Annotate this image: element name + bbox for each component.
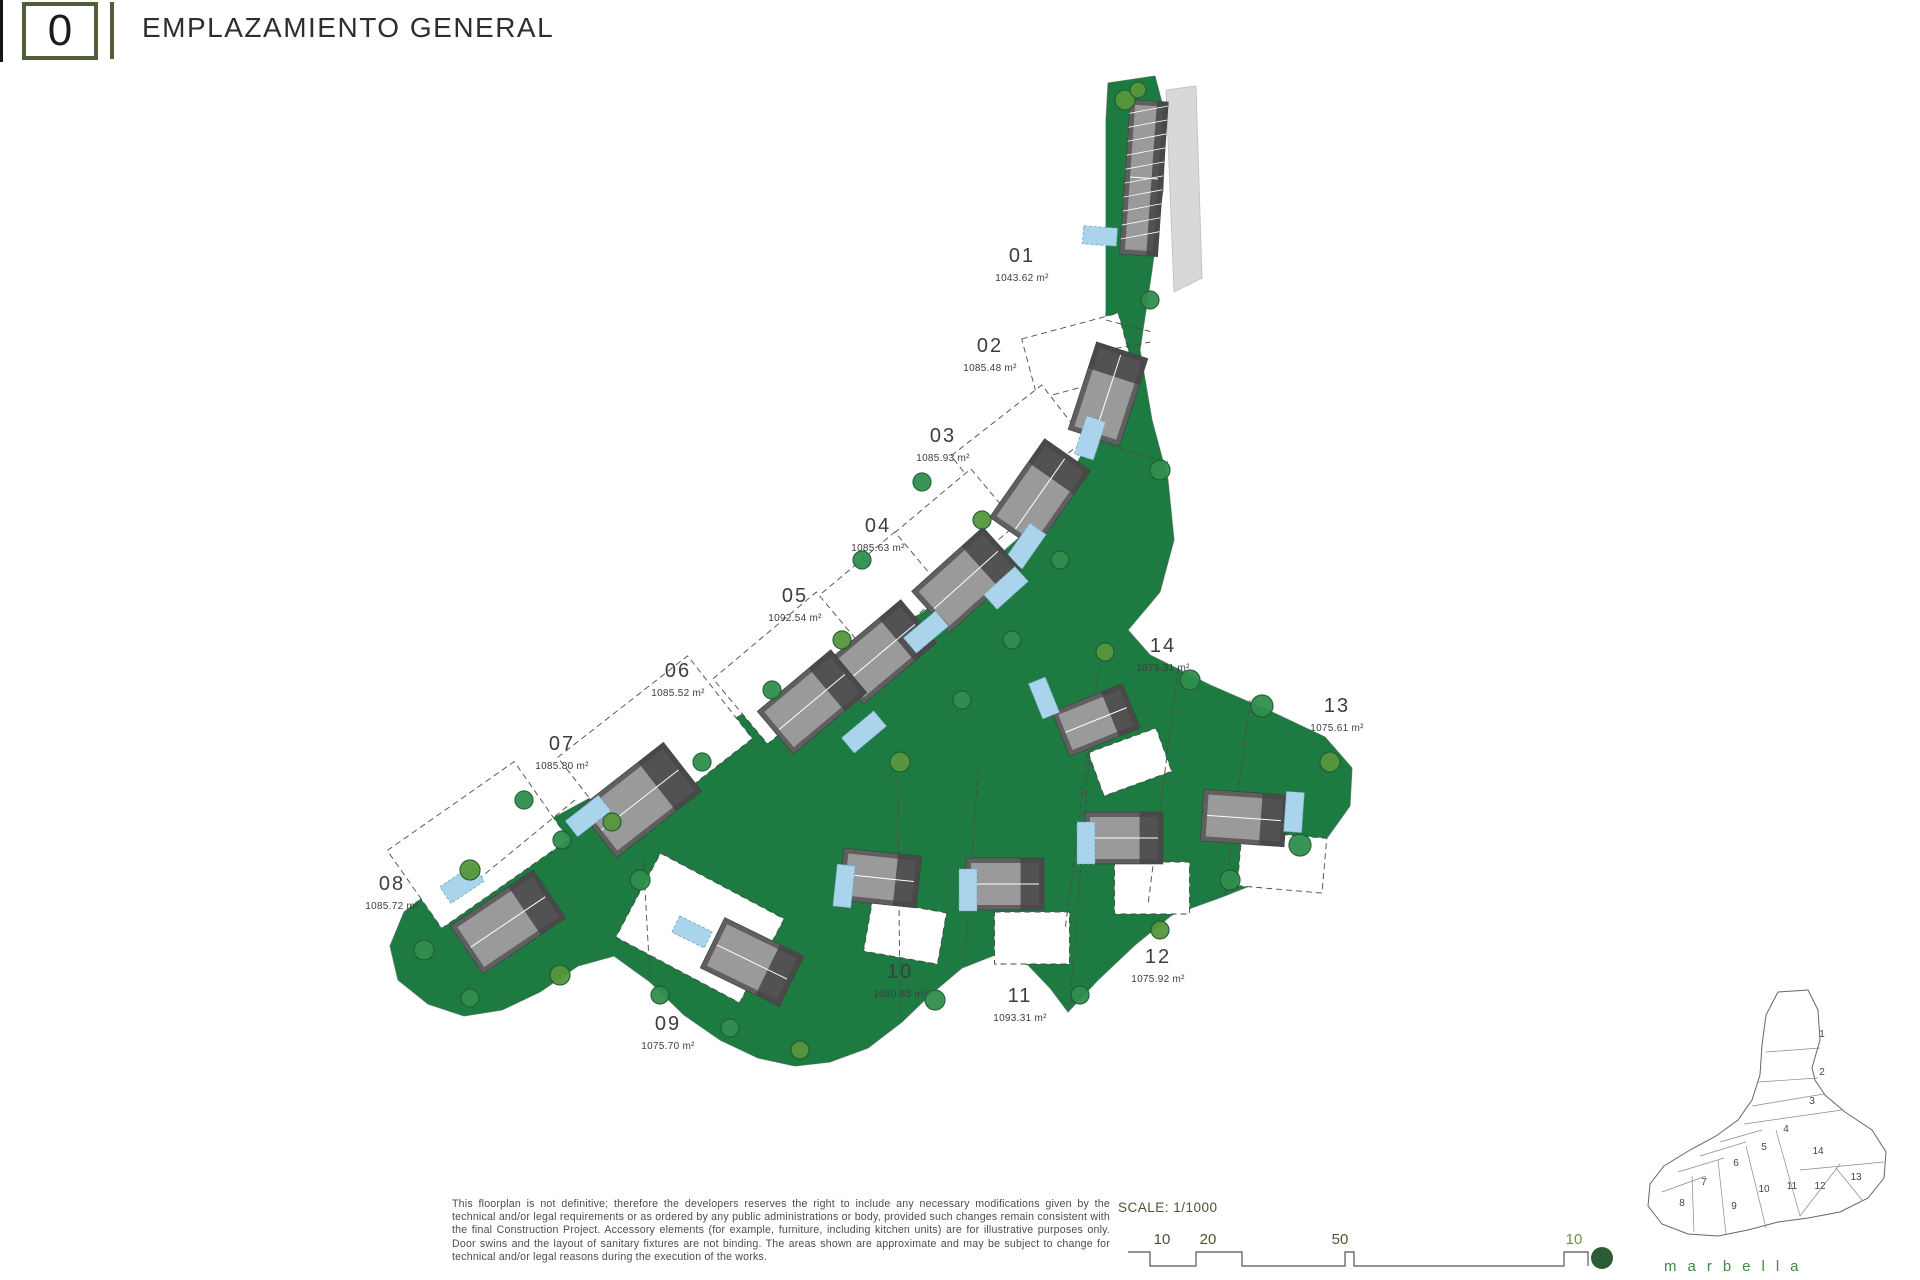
keyplan-plot-number: 2 bbox=[1819, 1067, 1825, 1078]
plot-area: 1079.31 m² bbox=[1136, 663, 1190, 674]
plot-area: 1092.54 m² bbox=[768, 613, 822, 624]
tree-icon bbox=[973, 511, 991, 529]
scale-bar-tick: 10 bbox=[1154, 1231, 1171, 1248]
plot-number: 05 bbox=[782, 585, 808, 607]
tree-icon bbox=[693, 753, 711, 771]
pool bbox=[1077, 822, 1095, 864]
plot-area: 1085.52 m² bbox=[651, 688, 705, 699]
keyplan-plot-number: 9 bbox=[1731, 1201, 1737, 1212]
tree-icon bbox=[1150, 460, 1170, 480]
plot-number: 13 bbox=[1324, 695, 1350, 717]
tree-icon bbox=[721, 1019, 739, 1037]
tree-icon bbox=[414, 940, 434, 960]
keyplan-plot-number: 3 bbox=[1809, 1096, 1815, 1107]
tree-icon bbox=[553, 831, 571, 849]
tree-icon bbox=[913, 473, 931, 491]
plot-number: 14 bbox=[1150, 635, 1176, 657]
villa bbox=[966, 858, 1044, 910]
brand-logotype: marbella bbox=[1664, 1258, 1810, 1275]
tree-icon bbox=[953, 691, 971, 709]
tree-icon bbox=[890, 752, 910, 772]
scale-bar bbox=[1128, 1252, 1588, 1266]
keyplan-plot-number: 7 bbox=[1701, 1177, 1707, 1188]
plot-area: 1075.70 m² bbox=[641, 1041, 695, 1052]
plot-number: 04 bbox=[865, 515, 891, 537]
tree-icon bbox=[1051, 551, 1069, 569]
tree-icon bbox=[1151, 921, 1169, 939]
tree-icon bbox=[763, 681, 781, 699]
keyplan-plot-number: 10 bbox=[1758, 1184, 1770, 1195]
tree-icon bbox=[603, 813, 621, 831]
plot-forecourt bbox=[1115, 862, 1190, 914]
keyplan-plot-number: 8 bbox=[1679, 1198, 1685, 1209]
tree-icon bbox=[791, 1041, 809, 1059]
pool bbox=[1082, 226, 1117, 246]
scale-bar-tick: 10 bbox=[1566, 1231, 1583, 1248]
tree-icon bbox=[1130, 82, 1146, 98]
keyplan-plot-number: 5 bbox=[1761, 1142, 1767, 1153]
tree-icon bbox=[1141, 291, 1159, 309]
scale-bar-tick: 50 bbox=[1332, 1231, 1349, 1248]
tree-icon bbox=[1320, 752, 1340, 772]
tree-icon bbox=[651, 986, 669, 1004]
scale-label: SCALE: 1/1000 bbox=[1118, 1200, 1218, 1215]
plot-number: 09 bbox=[655, 1013, 681, 1035]
plot-number: 08 bbox=[379, 873, 405, 895]
plot-number: 03 bbox=[930, 425, 956, 447]
tree-icon bbox=[460, 860, 480, 880]
plot-area: 1085.63 m² bbox=[851, 543, 905, 554]
tree-icon bbox=[1251, 695, 1273, 717]
keyplan-plot-number: 14 bbox=[1812, 1146, 1824, 1157]
access-road bbox=[1166, 86, 1202, 292]
scale-dot-icon bbox=[1591, 1247, 1613, 1269]
plot-area: 1043.62 m² bbox=[995, 273, 1049, 284]
plot-area: 1085.72 m² bbox=[365, 901, 419, 912]
tree-icon bbox=[1289, 834, 1311, 856]
plot-number: 01 bbox=[1009, 245, 1035, 267]
plot-forecourt bbox=[995, 912, 1070, 964]
tree-icon bbox=[925, 990, 945, 1010]
keyplan-plot-number: 1 bbox=[1819, 1029, 1825, 1040]
tree-icon bbox=[461, 989, 479, 1007]
tree-icon bbox=[630, 870, 650, 890]
keyplan-plot-number: 11 bbox=[1787, 1181, 1798, 1192]
tree-icon bbox=[1220, 870, 1240, 890]
tree-icon bbox=[1003, 631, 1021, 649]
plot-number: 06 bbox=[665, 660, 691, 682]
plot-area: 1093.31 m² bbox=[993, 1013, 1047, 1024]
villa bbox=[1085, 812, 1163, 864]
tree-icon bbox=[550, 965, 570, 985]
scale-bar-tick: 20 bbox=[1200, 1231, 1217, 1248]
keyplan-plot-number: 4 bbox=[1783, 1124, 1789, 1135]
site-plan-drawing: 011043.62 m²021085.48 m²031085.93 m²0410… bbox=[0, 0, 1920, 1280]
disclaimer-text: This floorplan is not definitive; theref… bbox=[452, 1198, 1110, 1264]
plot-number: 07 bbox=[549, 733, 575, 755]
plot-number: 02 bbox=[977, 335, 1003, 357]
plot-area: 1080.85 m² bbox=[873, 989, 927, 1000]
keyplan-plot-number: 13 bbox=[1850, 1172, 1862, 1183]
tree-icon bbox=[1071, 986, 1089, 1004]
plot-number: 11 bbox=[1008, 985, 1033, 1007]
plot-area: 1085.80 m² bbox=[535, 761, 589, 772]
plot-area: 1085.93 m² bbox=[916, 453, 970, 464]
keyplan-plot-number: 6 bbox=[1733, 1158, 1739, 1169]
tree-icon bbox=[515, 791, 533, 809]
villa bbox=[1200, 789, 1287, 847]
pool bbox=[1284, 791, 1305, 832]
pool bbox=[959, 869, 977, 911]
plot-number: 10 bbox=[887, 961, 913, 983]
tree-icon bbox=[833, 631, 851, 649]
keyplan-plot-number: 12 bbox=[1814, 1181, 1826, 1192]
plot-area: 1085.48 m² bbox=[963, 363, 1017, 374]
plot-number: 12 bbox=[1145, 946, 1171, 968]
plot-area: 1075.92 m² bbox=[1131, 974, 1185, 985]
plot-area: 1075.61 m² bbox=[1310, 723, 1364, 734]
tree-icon bbox=[1096, 643, 1114, 661]
